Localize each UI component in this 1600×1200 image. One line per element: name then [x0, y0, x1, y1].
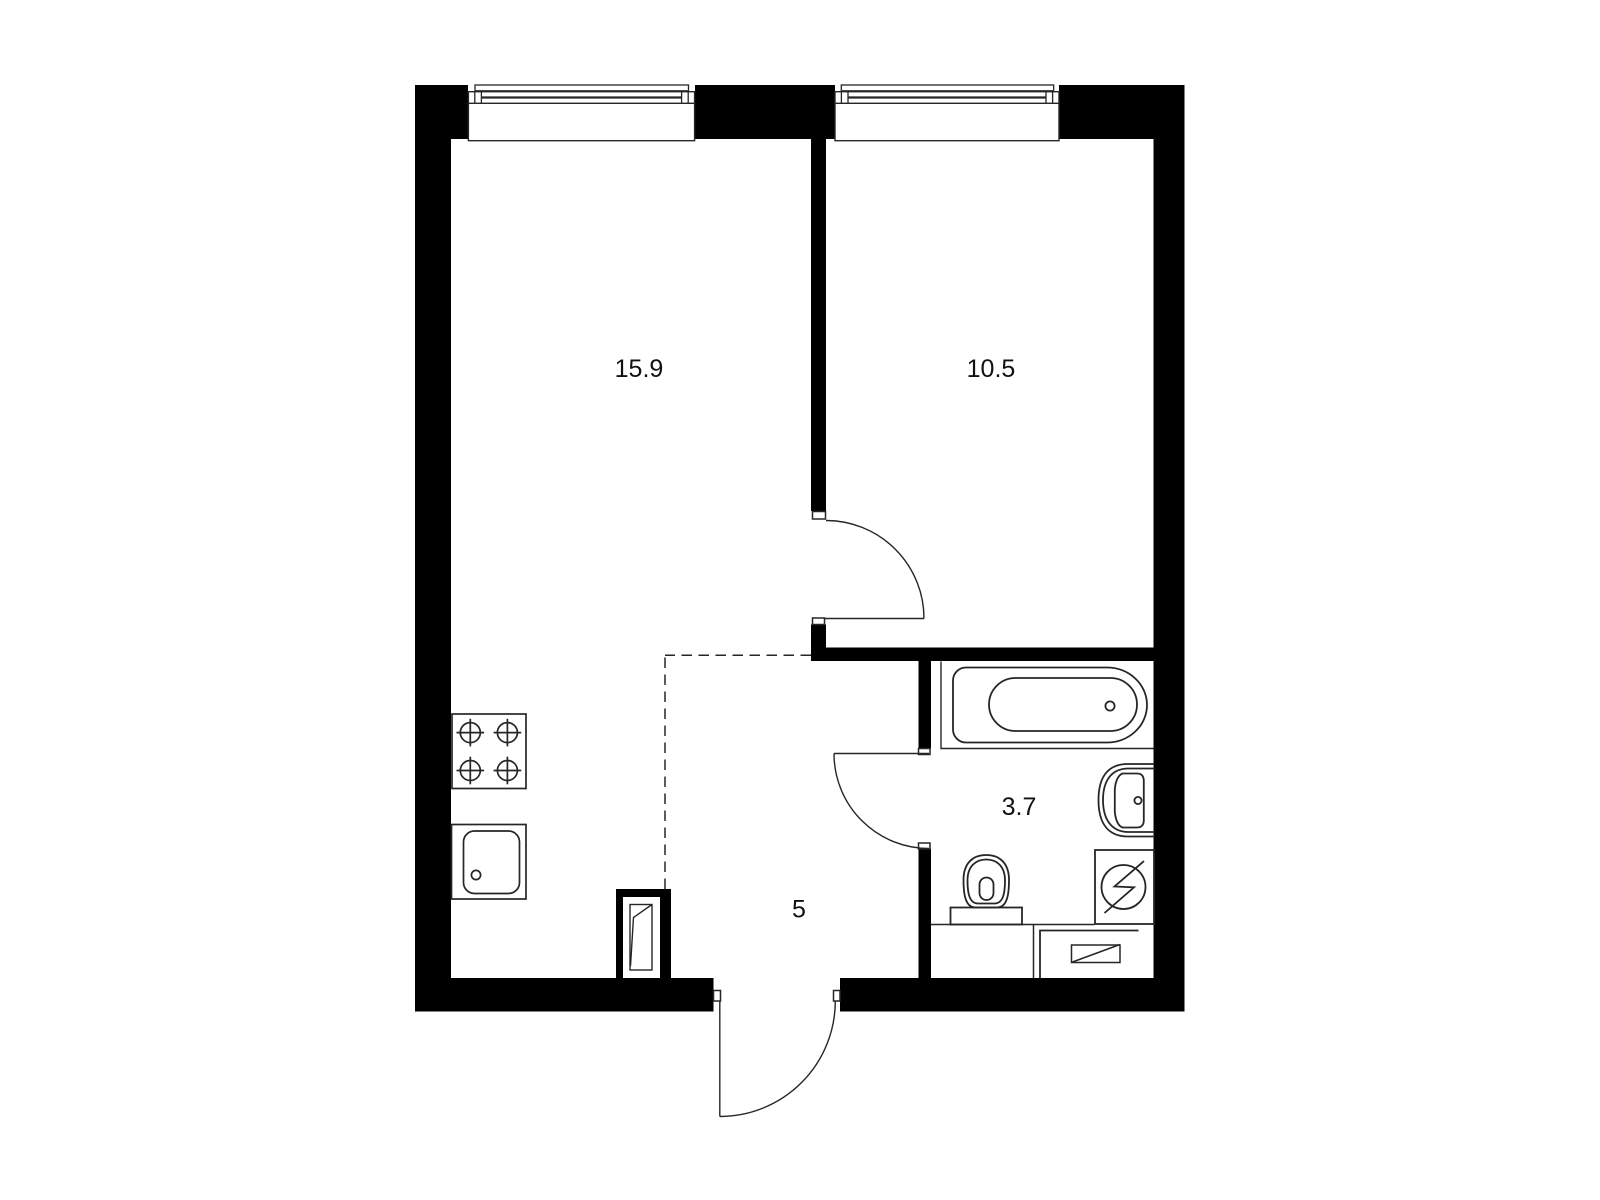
svg-text:3.7: 3.7: [1002, 793, 1037, 821]
svg-text:10.5: 10.5: [967, 355, 1016, 383]
svg-text:5: 5: [792, 896, 806, 924]
svg-text:15.9: 15.9: [615, 355, 664, 383]
